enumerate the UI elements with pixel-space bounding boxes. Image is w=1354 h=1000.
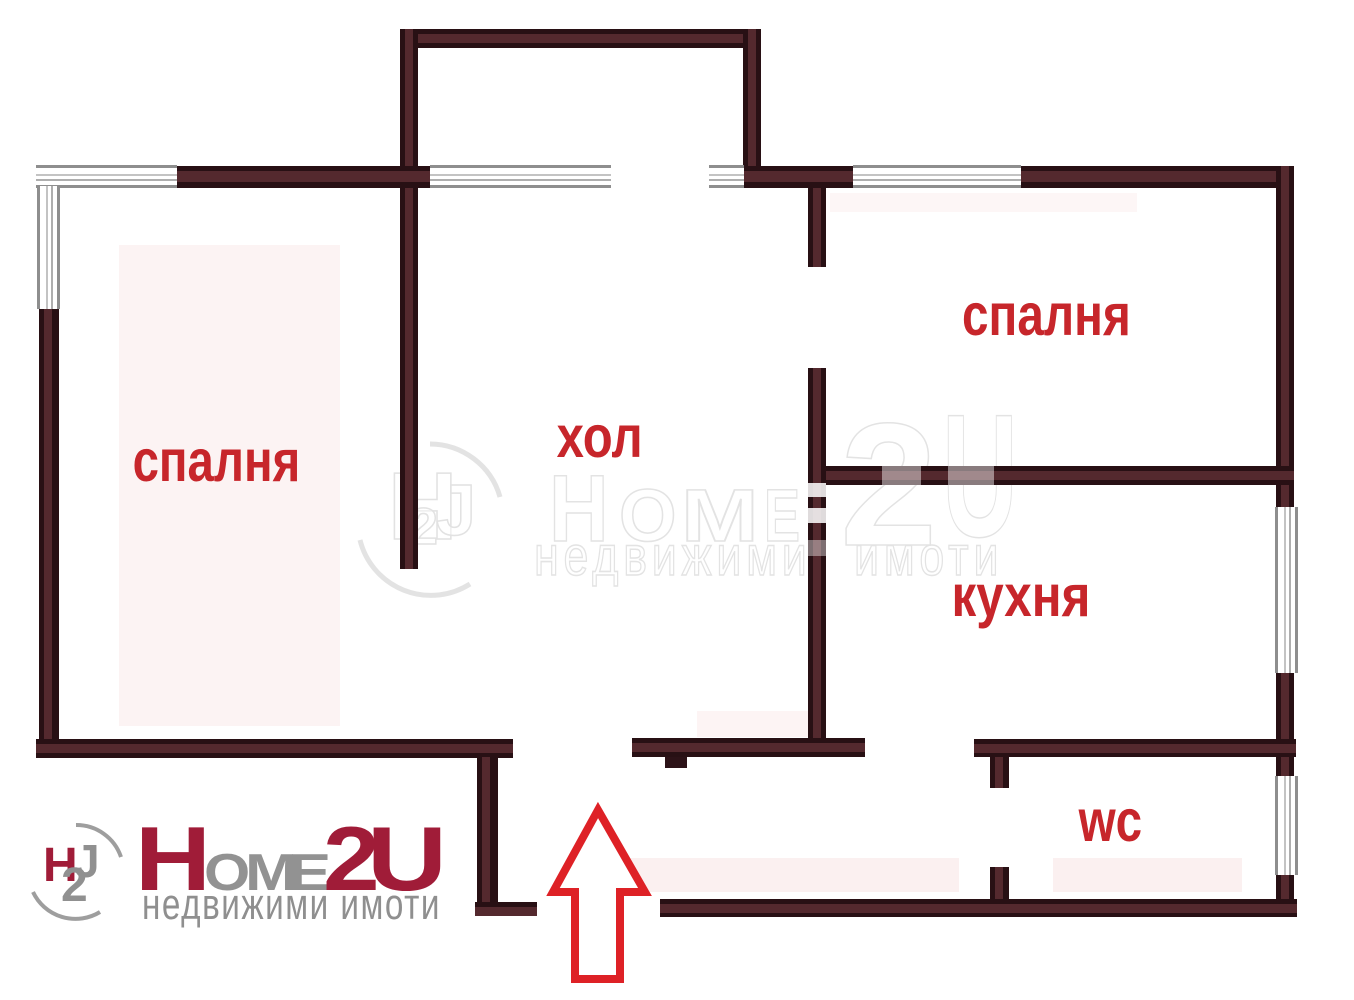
svg-text:недвижими: недвижими: [534, 524, 812, 587]
svg-text:J: J: [436, 471, 476, 551]
svg-text:недвижими имоти: недвижими имоти: [142, 881, 441, 930]
svg-text:2: 2: [61, 859, 88, 912]
